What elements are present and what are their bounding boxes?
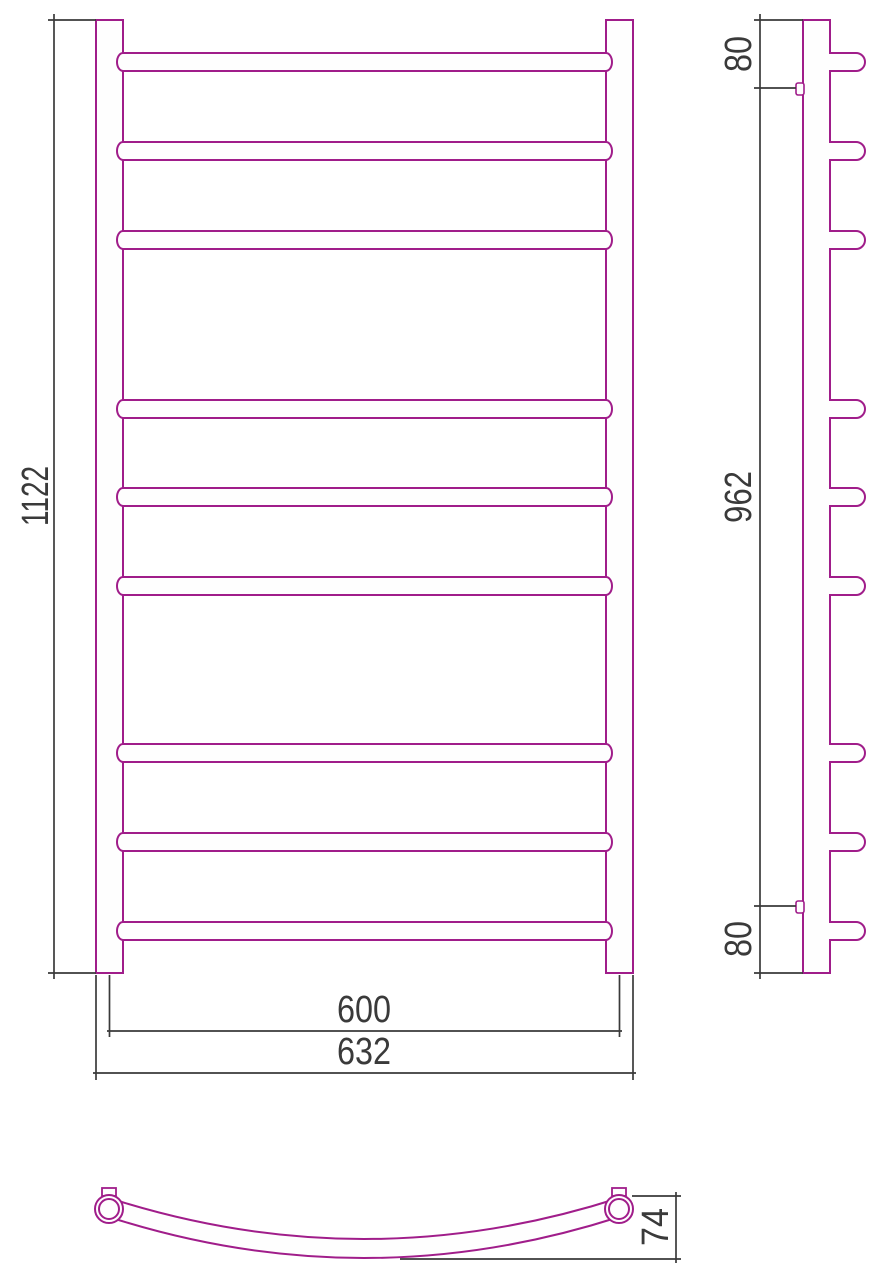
side-rung-end <box>829 488 865 506</box>
front-view <box>96 20 633 973</box>
side-rung-end <box>829 577 865 595</box>
side-rung-end <box>829 744 865 762</box>
front-rung <box>117 53 612 71</box>
bow-depth-label: 74 <box>635 1208 677 1246</box>
wall-bracket-top <box>796 83 804 95</box>
side-bracket-span-label: 962 <box>718 471 760 523</box>
wall-bracket-bottom <box>796 901 804 913</box>
front-rung <box>117 833 612 851</box>
front-rung <box>117 231 612 249</box>
side-top-offset-label: 80 <box>718 36 760 72</box>
front-rung <box>117 744 612 762</box>
front-rung <box>117 142 612 160</box>
top-view <box>95 1188 633 1258</box>
front-rung <box>117 488 612 506</box>
side-rung-end <box>829 231 865 249</box>
width632-dimension-label: 632 <box>337 1031 391 1073</box>
technical-drawing: 1122 600 632 80 962 80 <box>0 0 887 1280</box>
side-rung-end <box>829 922 865 940</box>
side-view <box>796 20 865 973</box>
side-rung-end <box>829 53 865 71</box>
side-rung-end <box>829 400 865 418</box>
front-rungs <box>117 53 612 940</box>
side-dimensions: 80 962 80 <box>718 14 803 979</box>
side-bottom-offset-label: 80 <box>718 921 760 957</box>
side-tube <box>803 20 830 973</box>
side-rung-end <box>829 142 865 160</box>
bowed-rung-band <box>109 1198 619 1258</box>
side-rung-end <box>829 833 865 851</box>
drawing-canvas: 1122 600 632 80 962 80 <box>0 0 887 1280</box>
width600-dimension-label: 600 <box>337 989 391 1031</box>
front-rung <box>117 577 612 595</box>
front-rung <box>117 922 612 940</box>
height-dimension-label: 1122 <box>15 466 57 526</box>
front-rung <box>117 400 612 418</box>
side-rung-ends <box>829 53 865 940</box>
